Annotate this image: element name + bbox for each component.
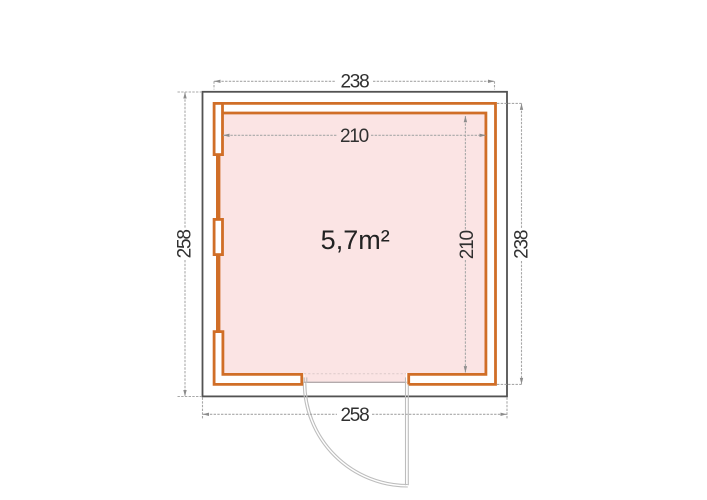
svg-text:258: 258 <box>174 230 195 259</box>
svg-text:210: 210 <box>457 231 478 260</box>
svg-text:238: 238 <box>511 230 532 259</box>
svg-text:5,7m²: 5,7m² <box>321 225 390 255</box>
svg-text:238: 238 <box>340 72 369 93</box>
svg-text:258: 258 <box>340 405 369 426</box>
svg-text:210: 210 <box>340 126 369 147</box>
